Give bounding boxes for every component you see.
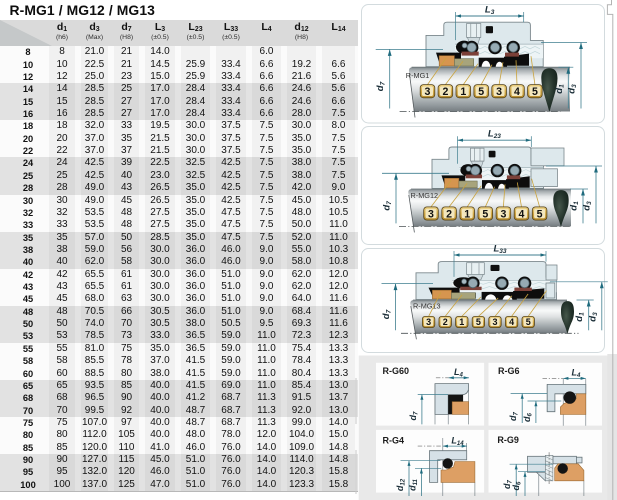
svg-text:5: 5 xyxy=(526,317,531,327)
svg-text:5: 5 xyxy=(532,86,538,98)
svg-text:5: 5 xyxy=(476,317,481,327)
svg-text:4: 4 xyxy=(514,86,520,98)
svg-text:R-MG12: R-MG12 xyxy=(411,191,439,200)
svg-text:R-G60: R-G60 xyxy=(383,366,410,376)
svg-text:L33: L33 xyxy=(493,244,506,256)
svg-text:3: 3 xyxy=(428,208,434,220)
svg-text:R-MG1: R-MG1 xyxy=(406,71,430,80)
svg-text:R-G9: R-G9 xyxy=(497,435,519,445)
svg-text:3: 3 xyxy=(500,208,506,220)
svg-text:2: 2 xyxy=(443,317,448,327)
svg-text:3: 3 xyxy=(492,317,497,327)
svg-text:1: 1 xyxy=(459,317,464,327)
svg-text:2: 2 xyxy=(446,208,452,220)
svg-text:1: 1 xyxy=(460,86,466,98)
svg-text:4: 4 xyxy=(509,317,514,327)
svg-text:1: 1 xyxy=(464,208,470,220)
svg-text:4: 4 xyxy=(519,208,525,220)
svg-text:R-G4: R-G4 xyxy=(383,436,405,446)
svg-text:R-MG13: R-MG13 xyxy=(413,302,441,311)
svg-text:5: 5 xyxy=(537,208,543,220)
svg-text:5: 5 xyxy=(478,86,484,98)
svg-text:R-G6: R-G6 xyxy=(498,366,520,376)
svg-text:3: 3 xyxy=(426,317,431,327)
svg-text:2: 2 xyxy=(442,86,448,98)
svg-text:3: 3 xyxy=(425,86,431,98)
svg-text:5: 5 xyxy=(482,208,488,220)
svg-text:3: 3 xyxy=(496,86,502,98)
